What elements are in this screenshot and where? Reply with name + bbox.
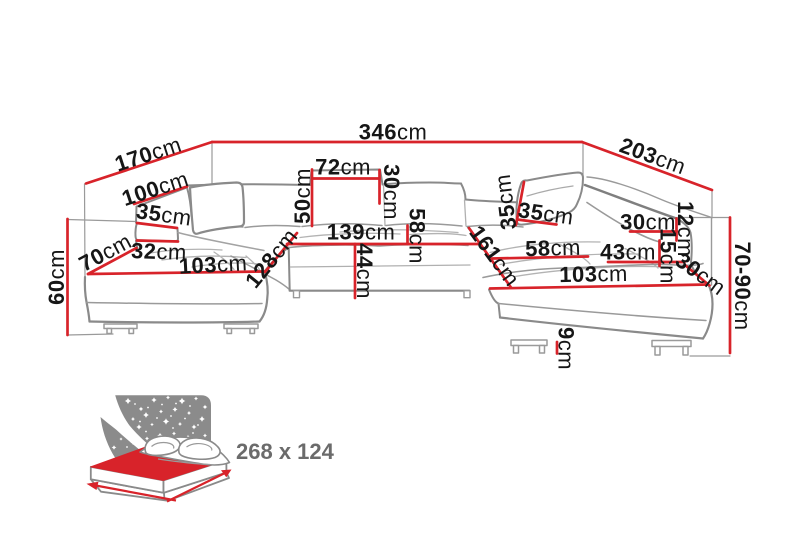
svg-text:58cm: 58cm <box>405 208 430 264</box>
svg-text:60cm: 60cm <box>44 249 69 305</box>
svg-text:70-90cm: 70-90cm <box>731 241 756 330</box>
svg-text:50cm: 50cm <box>290 168 315 224</box>
svg-text:103cm: 103cm <box>178 250 248 279</box>
svg-text:139cm: 139cm <box>327 219 396 244</box>
svg-text:30cm: 30cm <box>380 164 405 220</box>
svg-text:72cm: 72cm <box>315 154 371 179</box>
svg-text:103cm: 103cm <box>559 260 628 286</box>
svg-text:44cm: 44cm <box>353 243 378 299</box>
svg-text:346cm: 346cm <box>359 119 428 144</box>
svg-text:58cm: 58cm <box>525 234 581 260</box>
svg-text:9cm: 9cm <box>554 327 579 370</box>
svg-text:15cm: 15cm <box>656 228 681 284</box>
svg-text:268 x 124: 268 x 124 <box>236 439 335 464</box>
